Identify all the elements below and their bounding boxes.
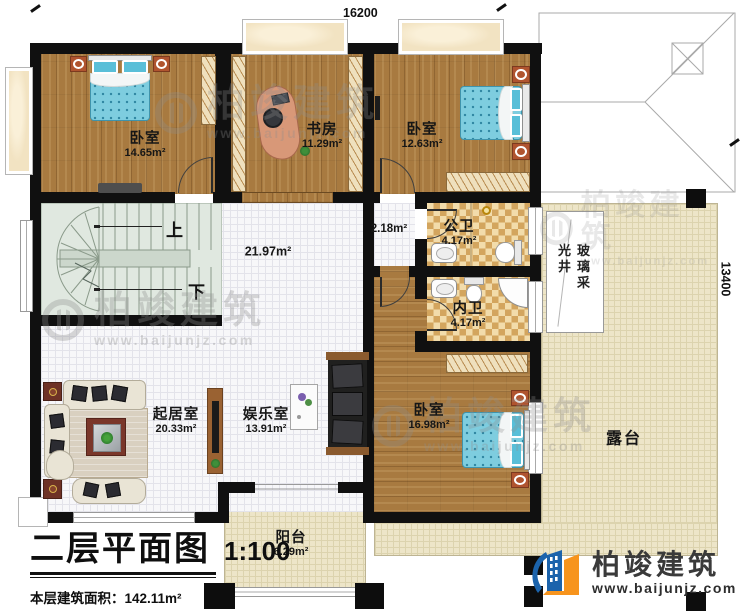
title-block: 二层平面图1:100 本层建筑面积：142.11m² 层高：3.3m — [30, 521, 291, 615]
bay-window-top-1 — [243, 20, 347, 54]
label-entertainment: 娱乐室13.91m² — [243, 408, 290, 436]
armchair — [46, 450, 74, 480]
study-opening-threshold — [242, 192, 333, 203]
wardrobe-bedroom2 — [446, 172, 530, 192]
corner-tick-topleft — [30, 4, 41, 13]
label-corridor-area: 2.18m² — [371, 223, 407, 235]
wall-ent-stub — [218, 482, 229, 523]
coffee-table — [86, 418, 126, 456]
wall-corridor-bed3-b — [409, 266, 415, 277]
sliding-door-balcony — [255, 482, 338, 491]
wall-mid-4 — [374, 192, 380, 203]
label-ensuite-bath: 内卫4.17m² — [451, 302, 486, 330]
dimension-right: 13400 — [718, 262, 732, 297]
page-title: 二层平面图 — [30, 530, 210, 568]
bay-window-left — [6, 68, 32, 174]
pendant-lamp — [482, 206, 491, 215]
wall-bottom-bedroom3 — [363, 512, 541, 523]
wall-mid-3 — [333, 192, 363, 203]
bed-bedroom2 — [460, 84, 530, 142]
label-bedroom2: 卧室12.63m² — [402, 123, 443, 151]
window-right-ensuite — [528, 281, 543, 333]
stairs-up-line — [100, 226, 162, 227]
stairs-down-label: 下 — [188, 278, 205, 303]
label-hall-area: 21.97m² — [245, 245, 292, 259]
label-study: 书房11.29m² — [302, 123, 342, 151]
brand-logo-icon — [527, 543, 583, 603]
corner-tick-topright — [496, 3, 507, 12]
wall-stairs-bottom — [30, 315, 222, 326]
dresser-bedroom1 — [98, 183, 142, 193]
dimension-top: 16200 — [343, 6, 378, 20]
wardrobe-study-left — [232, 56, 246, 192]
wall-bath-left-a — [415, 203, 427, 209]
media-wall-unit — [328, 352, 367, 455]
toilet-public-bath — [495, 239, 522, 266]
bay-window-top-2 — [399, 20, 503, 54]
stairs-down-line — [100, 289, 182, 290]
flower-cabinet — [290, 384, 318, 430]
brand-logo-text: 柏竣建筑 www.baijunjz.com — [592, 550, 737, 597]
floor-plan-canvas: 玻璃采光井 — [0, 0, 750, 615]
title-rule-2 — [30, 577, 216, 579]
sink-ensuite — [431, 279, 457, 298]
nightstand-b3-bottom — [511, 472, 529, 488]
nightstand-b2-bottom — [512, 143, 530, 160]
end-table-bottom — [43, 479, 62, 499]
skylight-well: 玻璃采光井 — [547, 212, 603, 332]
nightstand-b3-top — [511, 390, 529, 406]
stairs-up-label: 上 — [166, 216, 183, 241]
wall-mid-2 — [213, 192, 242, 203]
wall-bath-divider — [415, 266, 541, 277]
tv-bedroom2 — [375, 96, 380, 120]
window-right-bedroom3 — [528, 402, 543, 474]
label-bedroom3: 卧室16.98m² — [409, 404, 450, 432]
skylight-label: 玻璃采光井 — [554, 244, 592, 301]
wall-mid-1 — [30, 192, 175, 203]
end-table-top — [43, 382, 62, 401]
nightstand-b2-top — [512, 66, 530, 83]
wall-bath-bottom — [415, 341, 541, 352]
column-balcony-right — [355, 583, 384, 609]
wardrobe-bedroom3 — [446, 354, 528, 373]
nightstand-b1-right — [153, 56, 170, 72]
scale-label: 1:100 — [224, 536, 291, 566]
bed-bedroom3 — [462, 410, 530, 470]
bed-bedroom1 — [88, 55, 152, 121]
wall-ent-bottom-b — [338, 482, 363, 493]
wardrobe-bedroom1 — [201, 56, 216, 125]
study-chair — [263, 108, 283, 128]
title-rule-1 — [30, 572, 216, 575]
wall-bedroom1-study — [215, 54, 231, 203]
window-left-stairs — [20, 220, 33, 312]
stairs-up-tick — [94, 225, 100, 228]
label-living: 起居室20.33m² — [153, 408, 200, 436]
wall-mid-5 — [415, 192, 541, 203]
wall-corridor-bed3-a — [374, 266, 380, 277]
brand-logo: 柏竣建筑 www.baijunjz.com — [527, 543, 737, 603]
floor-area-line: 本层建筑面积：142.11m² — [30, 587, 291, 607]
tv-stand-living — [207, 388, 223, 474]
label-bedroom1: 卧室14.65m² — [125, 132, 166, 160]
stairs-down-tick — [94, 288, 100, 291]
label-public-bath: 公卫4.17m² — [442, 220, 477, 248]
nightstand-b1-left — [70, 56, 87, 72]
roof-plan — [538, 10, 738, 194]
label-terrace: 露台 — [606, 430, 642, 447]
window-right-publicbath — [528, 207, 543, 255]
wall-bath-left-c — [415, 331, 427, 341]
toilet-ensuite — [462, 277, 486, 304]
wardrobe-study-right — [348, 56, 363, 192]
column-terrace-top — [686, 189, 706, 208]
